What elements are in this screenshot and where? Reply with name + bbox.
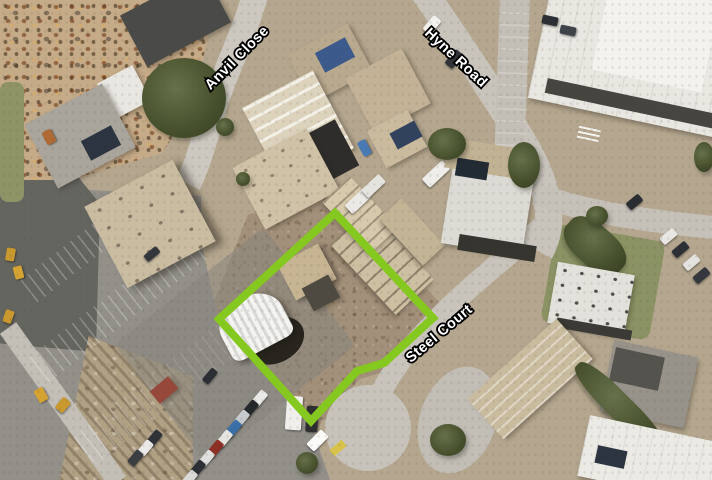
annotation-layer: Anvil Close Hyne Road Steel Court (0, 0, 712, 480)
property-boundary (219, 213, 433, 421)
street-label-hyne-road: Hyne Road (421, 25, 490, 91)
aerial-map: Anvil Close Hyne Road Steel Court (0, 0, 712, 480)
street-label-anvil-close: Anvil Close (202, 23, 272, 93)
